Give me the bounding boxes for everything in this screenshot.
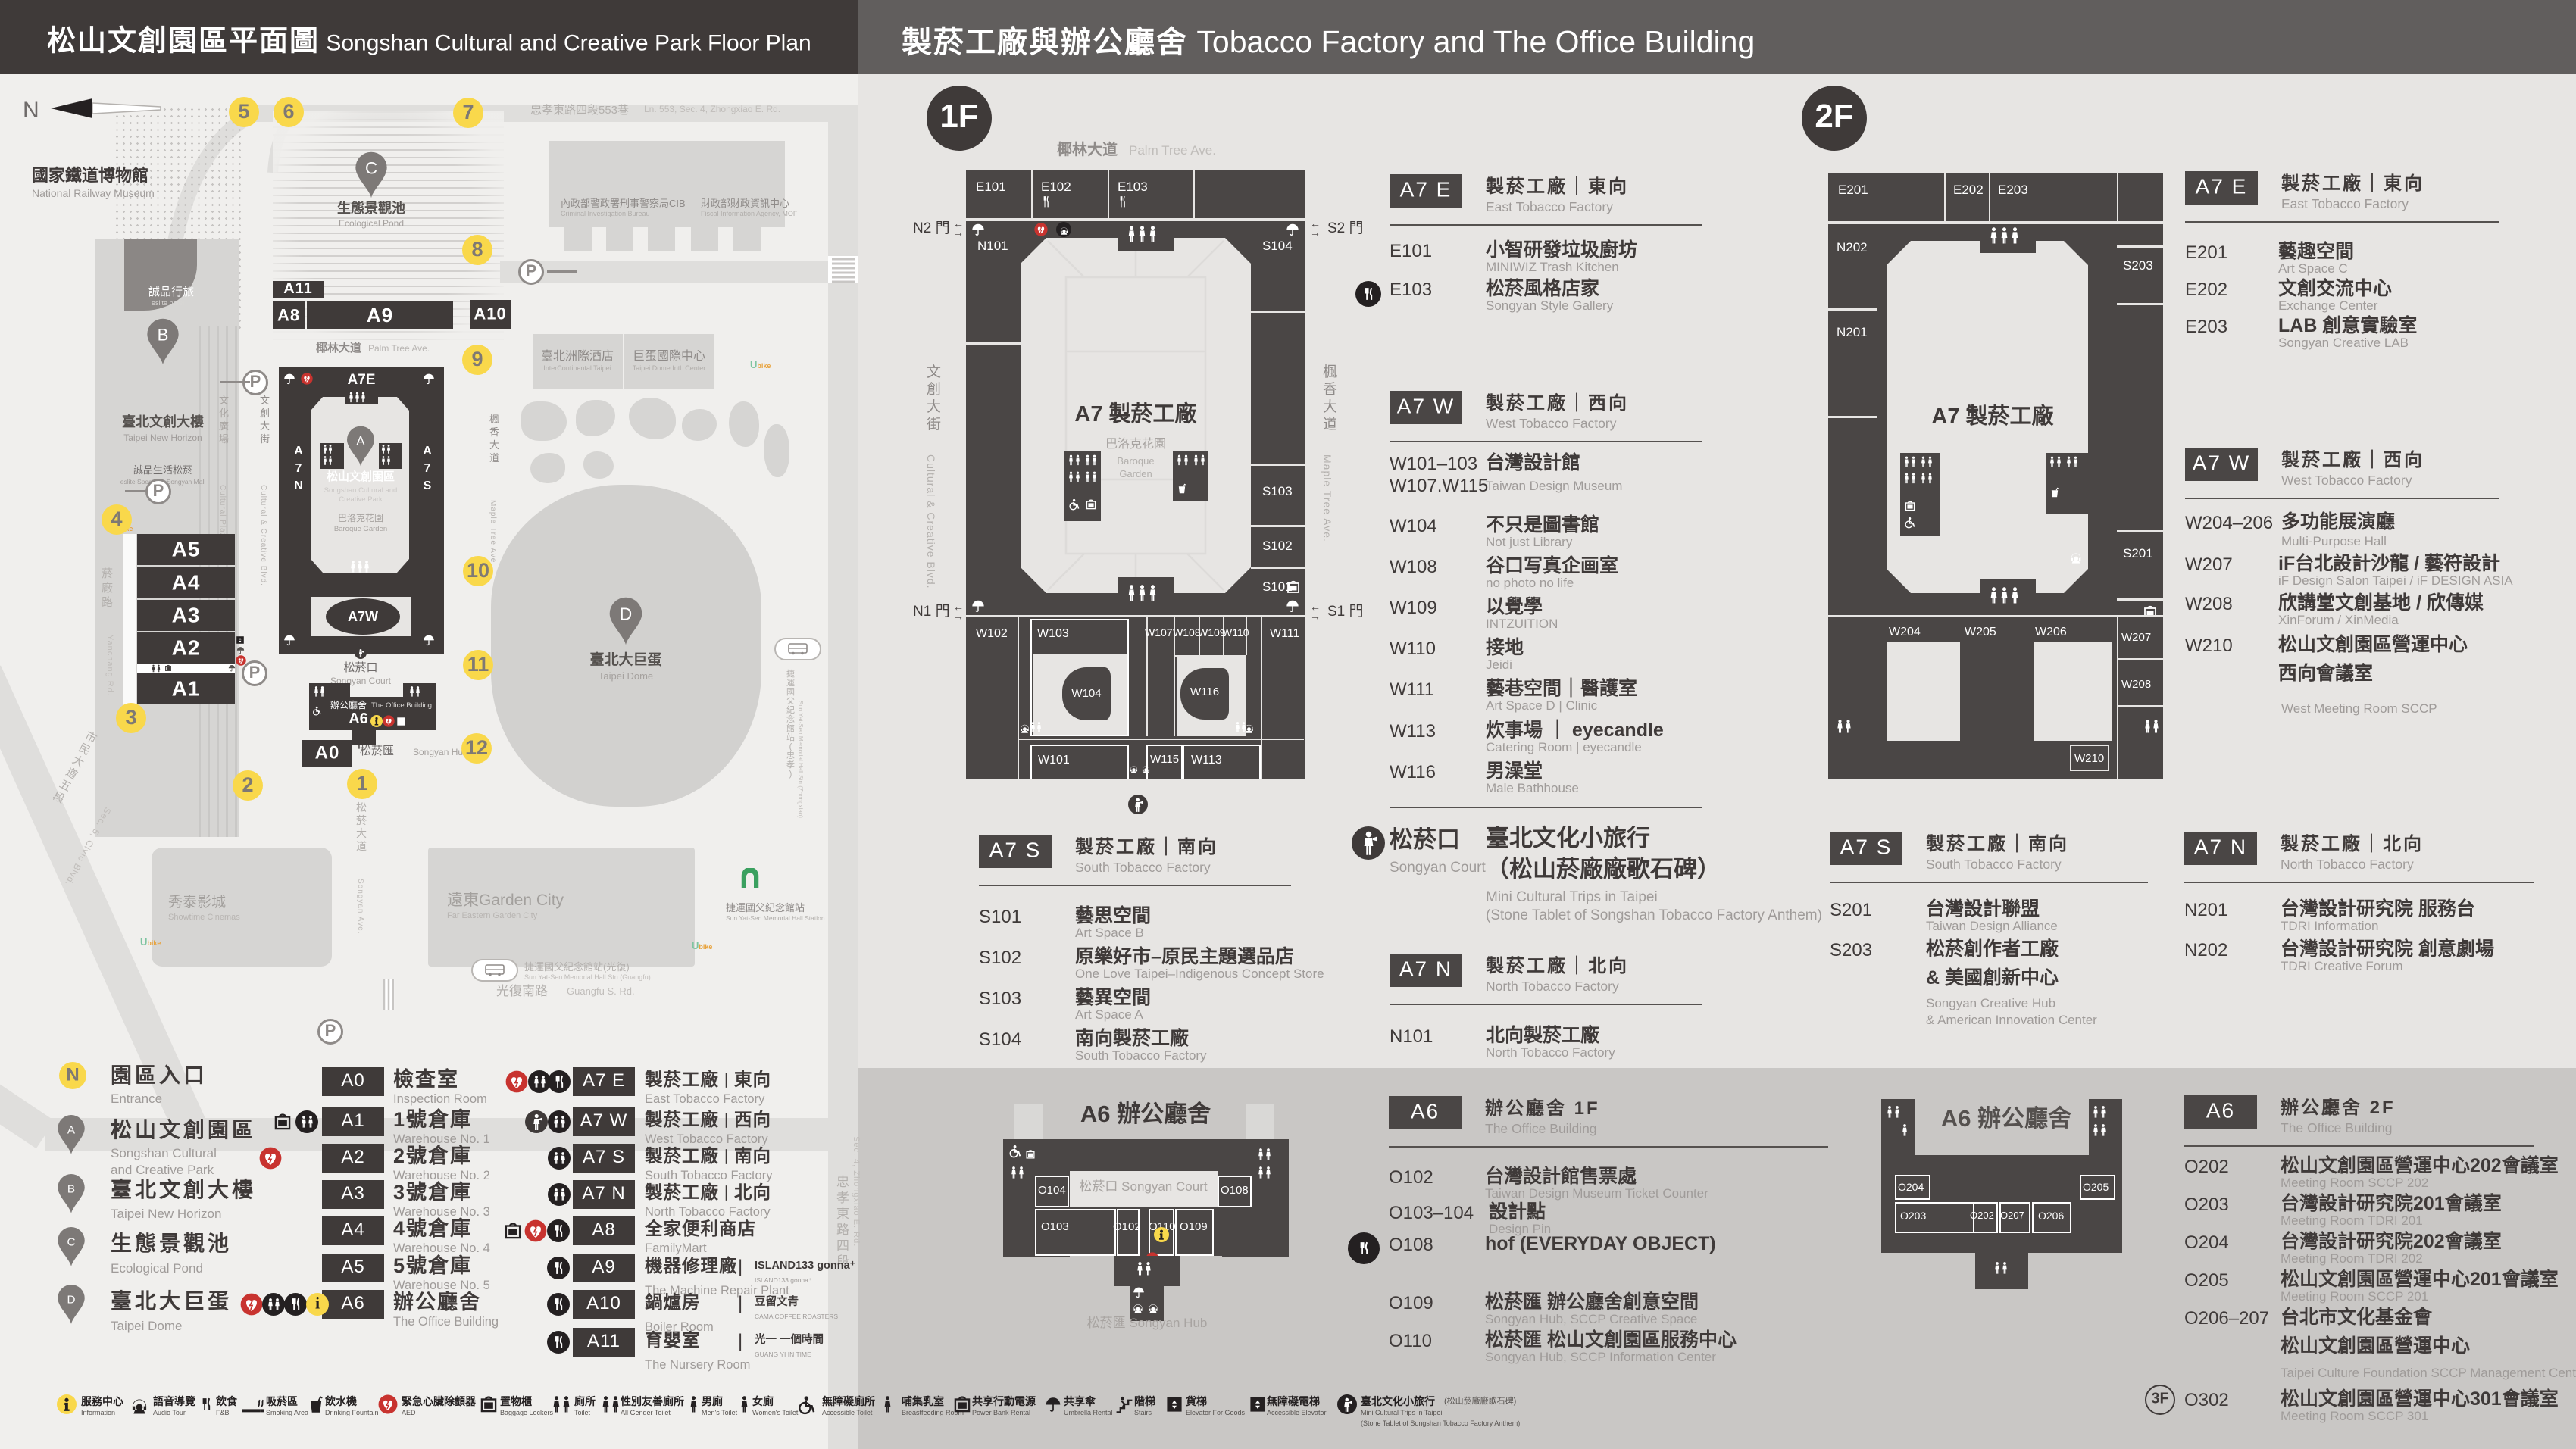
svg-text:C: C (67, 1236, 76, 1249)
svg-text:A: A (67, 1124, 76, 1137)
svg-text:D: D (67, 1294, 76, 1307)
svg-text:C: C (365, 159, 377, 178)
svg-text:D: D (620, 604, 633, 623)
svg-text:B: B (158, 326, 169, 345)
svg-text:A: A (356, 434, 365, 448)
svg-text:B: B (67, 1183, 75, 1196)
